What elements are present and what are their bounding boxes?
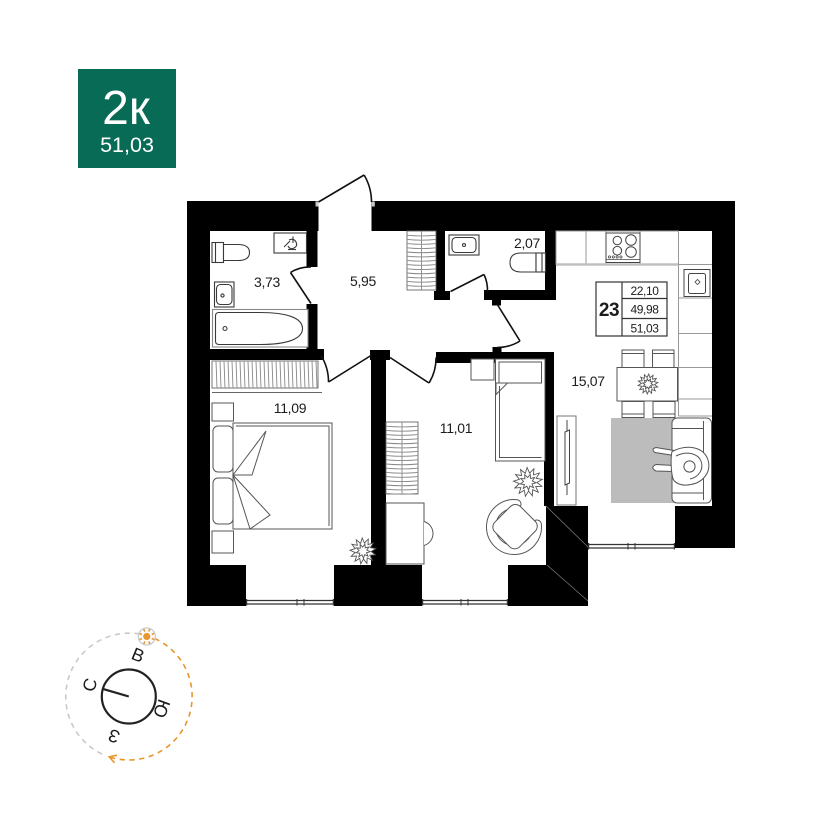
svg-text:15,07: 15,07 xyxy=(571,373,605,389)
svg-text:5,95: 5,95 xyxy=(350,273,377,289)
svg-text:51,03: 51,03 xyxy=(630,322,659,336)
svg-text:11,01: 11,01 xyxy=(440,420,473,436)
svg-text:11,09: 11,09 xyxy=(274,400,307,416)
svg-text:23: 23 xyxy=(599,300,619,321)
svg-text:49,98: 49,98 xyxy=(630,303,659,317)
svg-text:51,03: 51,03 xyxy=(100,133,154,157)
svg-text:3,73: 3,73 xyxy=(254,274,281,290)
svg-text:2,07: 2,07 xyxy=(514,235,541,251)
svg-text:2к: 2к xyxy=(102,82,151,135)
svg-text:22,10: 22,10 xyxy=(630,284,659,298)
